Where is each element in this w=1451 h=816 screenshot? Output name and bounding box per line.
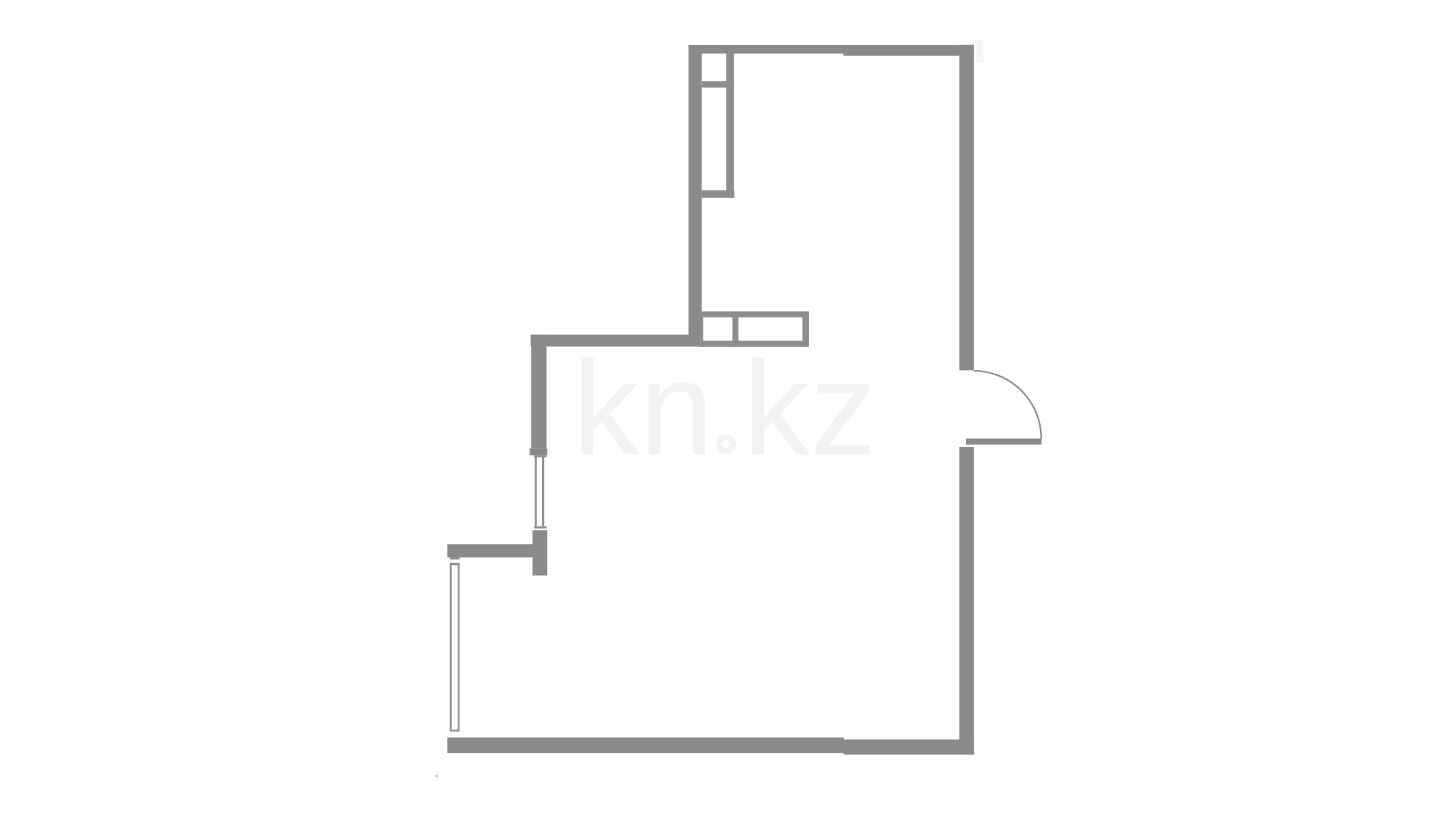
svg-text:kn: kn — [573, 334, 714, 483]
svg-text:kz: kz — [743, 334, 877, 483]
